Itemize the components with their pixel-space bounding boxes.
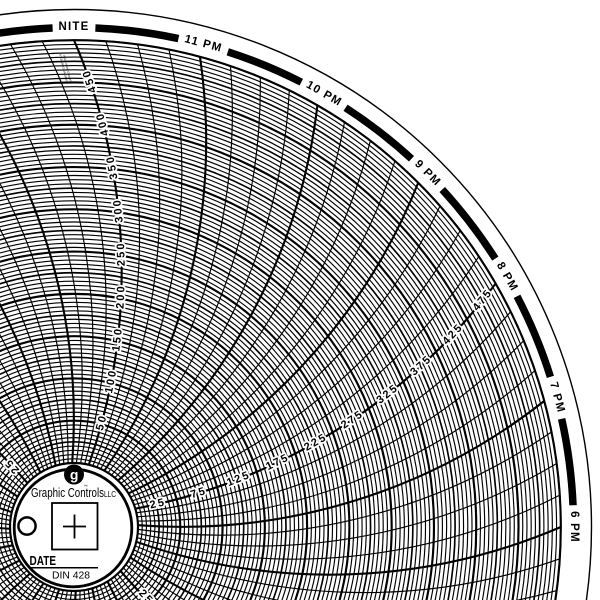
- svg-text:250: 250: [115, 241, 128, 266]
- svg-text:300: 300: [111, 198, 126, 224]
- svg-text:DATE: DATE: [30, 554, 57, 568]
- svg-text:g: g: [70, 467, 79, 483]
- svg-text:LLC: LLC: [104, 490, 116, 499]
- svg-text:Graphic Controls: Graphic Controls: [31, 485, 104, 500]
- svg-text:NITE: NITE: [59, 21, 90, 33]
- svg-text:6 PM: 6 PM: [568, 511, 580, 543]
- svg-text:DIN 428: DIN 428: [52, 571, 90, 582]
- svg-text:200: 200: [115, 284, 128, 309]
